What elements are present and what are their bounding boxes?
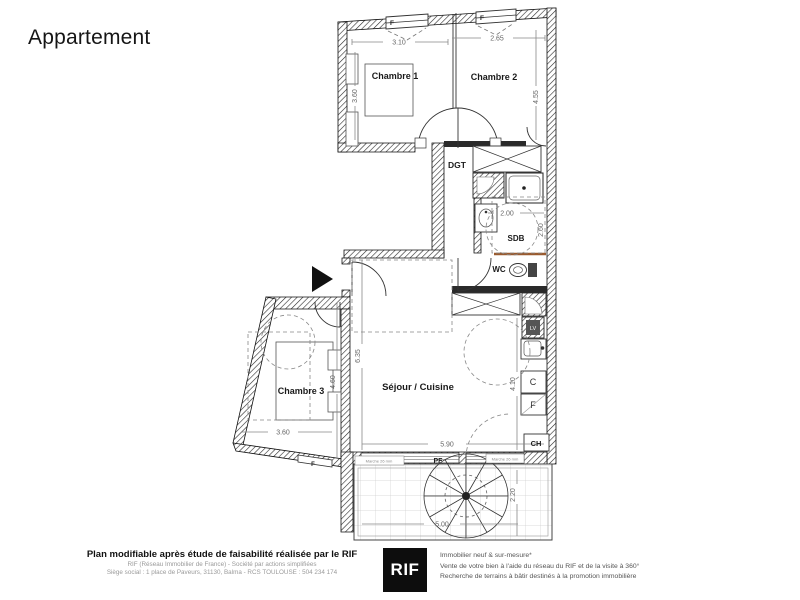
nightstand-ch3-a [328, 350, 341, 370]
label-dgt: DGT [448, 160, 467, 170]
bed-ch3 [276, 342, 333, 420]
entry-zone [352, 260, 452, 332]
wall-entry-stub-bottom [342, 290, 350, 297]
turning-circle-sejour [464, 319, 530, 385]
wall-right [547, 8, 556, 464]
footer-disclaimer-bold: Plan modifiable après étude de faisabili… [86, 549, 358, 561]
label-chambre2: Chambre 2 [471, 72, 518, 82]
page: Appartement [0, 0, 800, 600]
label-window-f2: F [480, 15, 484, 22]
rif-logo-text: RIF [391, 560, 420, 580]
rif-logo: RIF [383, 548, 427, 592]
threshold-note-2: Marche 26 mm [492, 457, 519, 462]
label-chambre1: Chambre 1 [372, 71, 419, 81]
entry-arrow-icon [312, 266, 333, 292]
dim-310: 3.10 [392, 40, 406, 47]
door-ch2 [527, 127, 546, 146]
dim-455: 4.55 [533, 90, 540, 104]
closet-ch1-b [346, 112, 358, 146]
wall-wc-bottom [452, 286, 547, 293]
nightstand-ch3-b [328, 392, 341, 412]
label-cooker: C [530, 377, 537, 387]
dim-220: 2.20 [510, 488, 517, 502]
label-window-f3: F [311, 462, 315, 468]
label-pf: PF [434, 458, 444, 465]
label-sdb: SDB [508, 234, 525, 243]
label-ch: CH [531, 439, 542, 448]
dim-260: 2.60 [538, 223, 545, 237]
label-wc: WC [492, 265, 506, 274]
wall-entry-stub-top [342, 258, 350, 264]
label-chambre3: Chambre 3 [278, 386, 325, 396]
dim-360-ch1: 3.60 [352, 89, 359, 103]
dashed-guides [248, 197, 545, 458]
wall-sejour-left [341, 309, 350, 460]
floor-plan: Chambre 1 Chambre 2 Chambre 3 DGT SDB WC… [0, 0, 800, 600]
dim-360-ch3: 3.60 [276, 430, 290, 437]
wall-ch3-slant [233, 297, 276, 445]
threshold-note-1: Marche 26 mm [366, 459, 393, 464]
footer-services: Immobilier neuf & sur-mesure* Vente de v… [440, 551, 770, 583]
footer-service-3: Recherche de terrains à bâtir destinés à… [440, 572, 770, 583]
footer-service-1: Immobilier neuf & sur-mesure* [440, 551, 770, 562]
wall-balcony-left [341, 452, 353, 532]
dim-200: 2.00 [500, 211, 514, 218]
wall-top [338, 8, 556, 31]
dim-500: 5.00 [435, 522, 449, 529]
label-lv: LV [530, 326, 537, 332]
door-balcony-dashed [466, 414, 510, 458]
footer-service-2: Vente de votre bien à l'aide du réseau d… [440, 562, 770, 573]
label-fridge: F [530, 400, 536, 410]
footer-address-line: Siège social : 1 place de Paveurs, 31130… [86, 569, 358, 577]
dim-635: 6.35 [355, 349, 362, 363]
door-entry [352, 262, 386, 296]
balcony [354, 454, 552, 540]
wall-hall-top [344, 250, 444, 258]
dim-460: 4.60 [330, 375, 337, 389]
closet-ch1-a [346, 54, 358, 84]
washbasin [475, 204, 497, 232]
dim-410: 4.10 [510, 377, 517, 391]
label-window-f1: F [390, 20, 394, 27]
dim-265: 2.65 [490, 36, 504, 43]
wall-ch3-bottom [233, 443, 350, 468]
label-sejour: Séjour / Cuisine [382, 382, 454, 393]
footer-disclaimer: Plan modifiable après étude de faisabili… [86, 549, 358, 577]
dim-590: 5.90 [440, 442, 454, 449]
toilet [510, 264, 527, 277]
footer-company-line: RIF (Réseau Immobilier de France) - Soci… [86, 561, 358, 569]
wall-dgt-left [432, 143, 444, 258]
